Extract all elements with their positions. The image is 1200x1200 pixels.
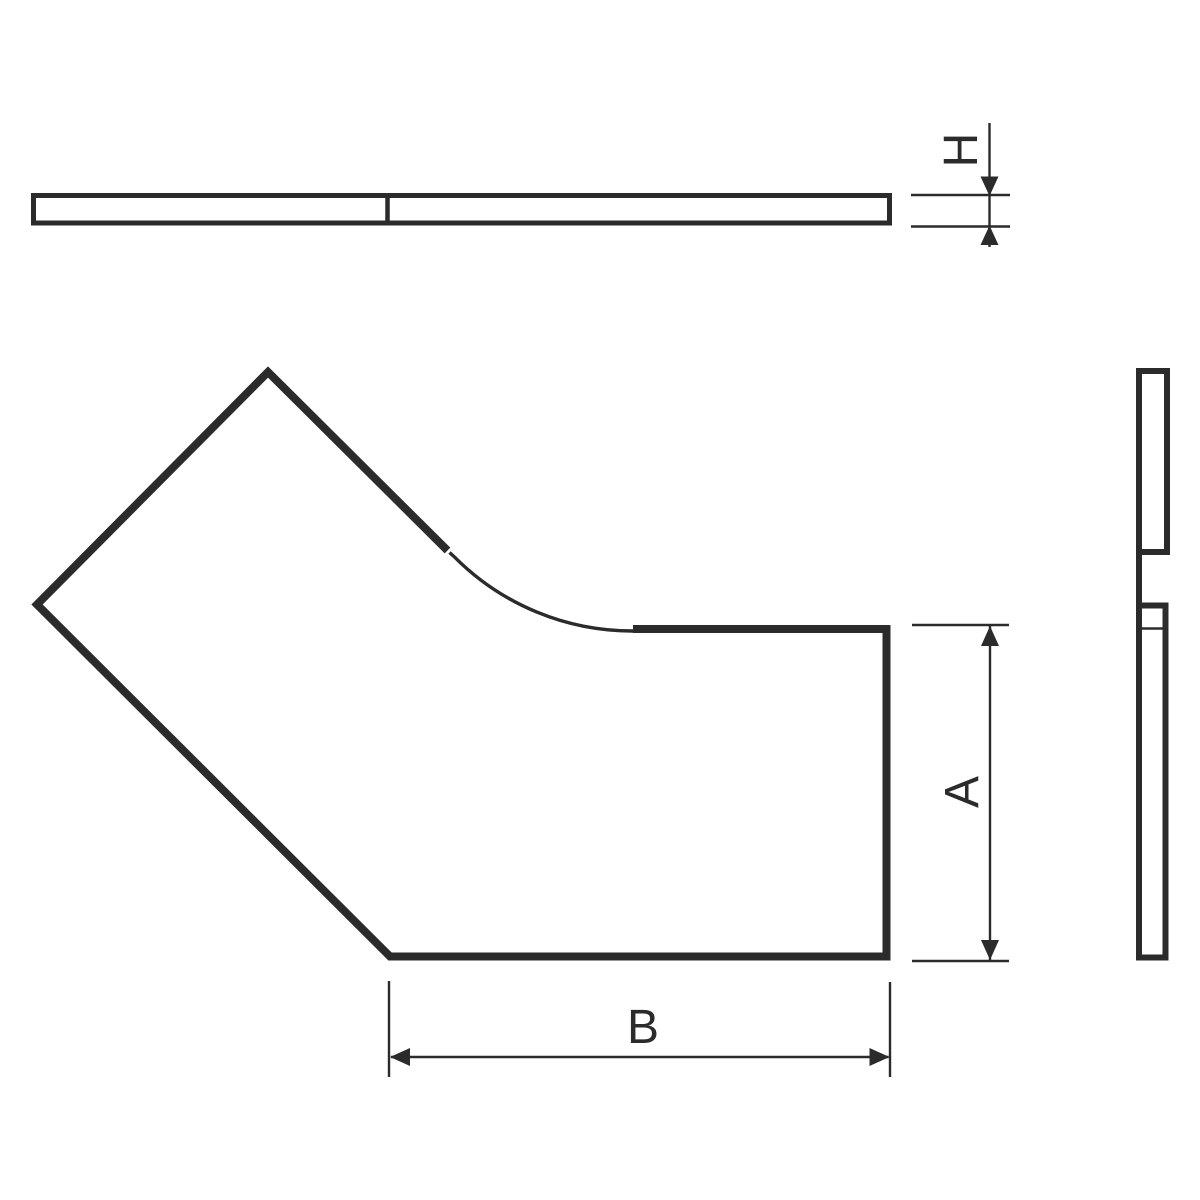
a-arrowhead-down [981,940,999,960]
top-strip-view [34,196,890,224]
b-dimension-label: B [627,1001,659,1054]
b-arrowhead-left [390,1048,410,1066]
dimension-h: H [911,123,1010,247]
strip-outline [34,196,890,224]
dimension-b: B [389,981,890,1077]
side-view-upper-arm [1139,371,1167,552]
bend-cover-side-view [1137,371,1168,958]
a-arrowhead-up [981,626,999,646]
h-arrowhead-up [981,226,999,246]
side-view-lower-arm [1139,606,1166,958]
bend-cover-outline [37,372,887,957]
h-dimension-label: H [935,133,988,168]
a-dimension-label: A [936,776,989,808]
technical-drawing: H A B [0,0,1200,1200]
bend-cover-inner-radius-seam [450,553,634,632]
dimension-a: A [912,625,1009,961]
bend-cover-plan-view [37,372,887,957]
h-arrowhead-down [981,177,999,197]
b-arrowhead-right [870,1048,890,1066]
